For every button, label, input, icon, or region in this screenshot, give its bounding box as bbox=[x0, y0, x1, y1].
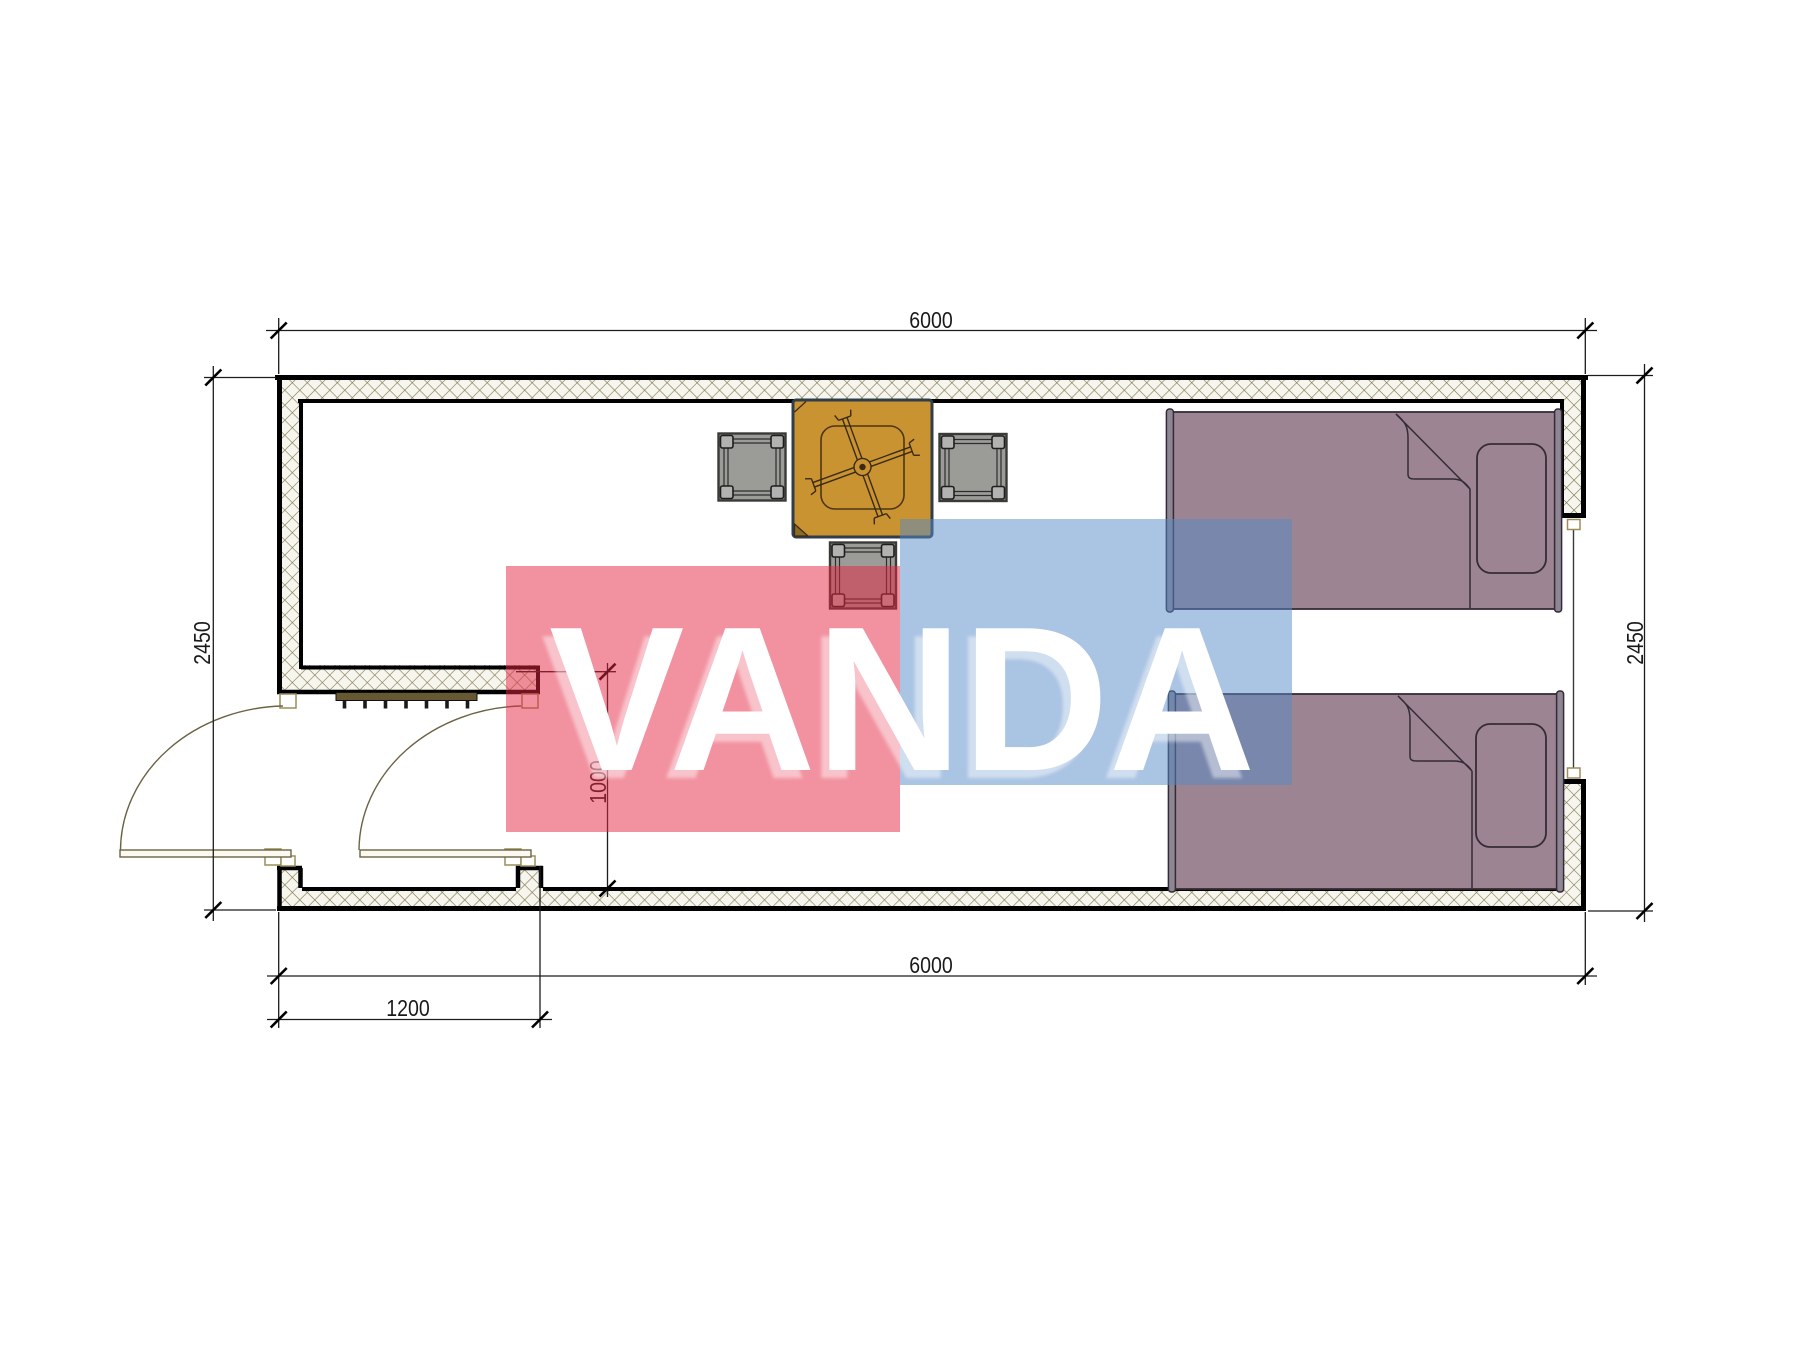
svg-text:6000: 6000 bbox=[909, 308, 953, 334]
svg-text:6000: 6000 bbox=[909, 953, 953, 979]
svg-text:1200: 1200 bbox=[386, 996, 430, 1022]
svg-text:2450: 2450 bbox=[1623, 621, 1649, 665]
svg-text:2450: 2450 bbox=[190, 621, 216, 665]
svg-text:VANDA: VANDA bbox=[549, 585, 1255, 815]
